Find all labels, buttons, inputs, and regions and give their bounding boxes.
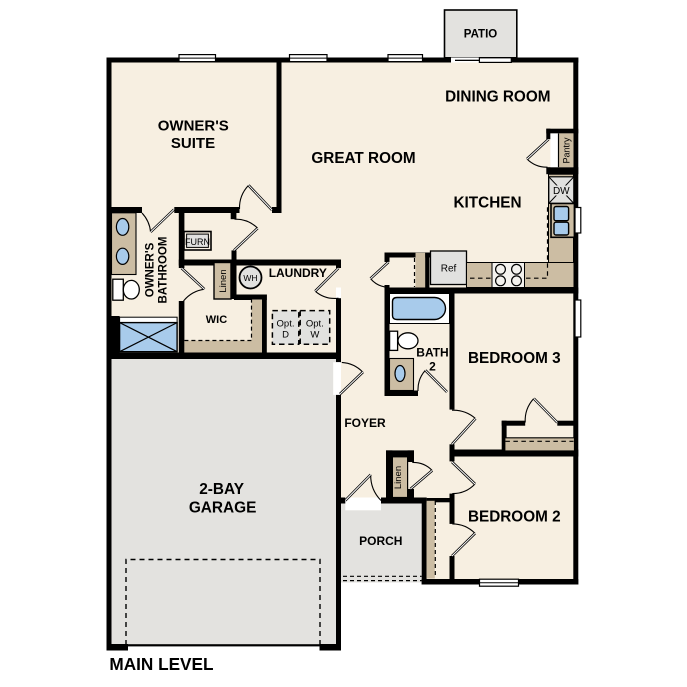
- svg-text:Linen: Linen: [218, 269, 229, 292]
- svg-text:Pantry: Pantry: [562, 137, 572, 164]
- svg-text:2-BAY: 2-BAY: [199, 481, 245, 498]
- svg-text:LAUNDRY: LAUNDRY: [269, 266, 327, 280]
- svg-text:WH: WH: [243, 273, 257, 283]
- svg-text:PATIO: PATIO: [464, 29, 497, 41]
- svg-text:OWNER'S: OWNER'S: [158, 118, 229, 135]
- svg-text:BATHROOM: BATHROOM: [157, 237, 169, 304]
- svg-text:DW: DW: [553, 186, 570, 197]
- svg-text:PORCH: PORCH: [359, 534, 402, 548]
- svg-text:BEDROOM 2: BEDROOM 2: [468, 508, 561, 525]
- svg-text:Ref: Ref: [441, 264, 457, 275]
- svg-text:D: D: [282, 329, 289, 340]
- svg-text:KITCHEN: KITCHEN: [454, 195, 522, 212]
- svg-text:GREAT ROOM: GREAT ROOM: [311, 150, 415, 167]
- svg-text:SUITE: SUITE: [171, 135, 215, 152]
- svg-text:FURN: FURN: [185, 237, 210, 247]
- svg-text:Opt.: Opt.: [277, 318, 295, 329]
- svg-text:Linen: Linen: [393, 466, 404, 489]
- svg-text:MAIN LEVEL: MAIN LEVEL: [109, 654, 213, 674]
- svg-text:GARAGE: GARAGE: [189, 500, 257, 517]
- svg-text:2: 2: [429, 360, 436, 374]
- svg-text:W: W: [310, 329, 319, 340]
- svg-text:OWNER'S: OWNER'S: [144, 242, 156, 297]
- svg-text:BATH: BATH: [416, 345, 448, 359]
- svg-text:Opt.: Opt.: [306, 318, 324, 329]
- svg-text:FOYER: FOYER: [344, 416, 386, 430]
- svg-text:WIC: WIC: [206, 314, 227, 326]
- svg-text:DINING ROOM: DINING ROOM: [445, 89, 550, 106]
- svg-text:BEDROOM 3: BEDROOM 3: [468, 350, 561, 367]
